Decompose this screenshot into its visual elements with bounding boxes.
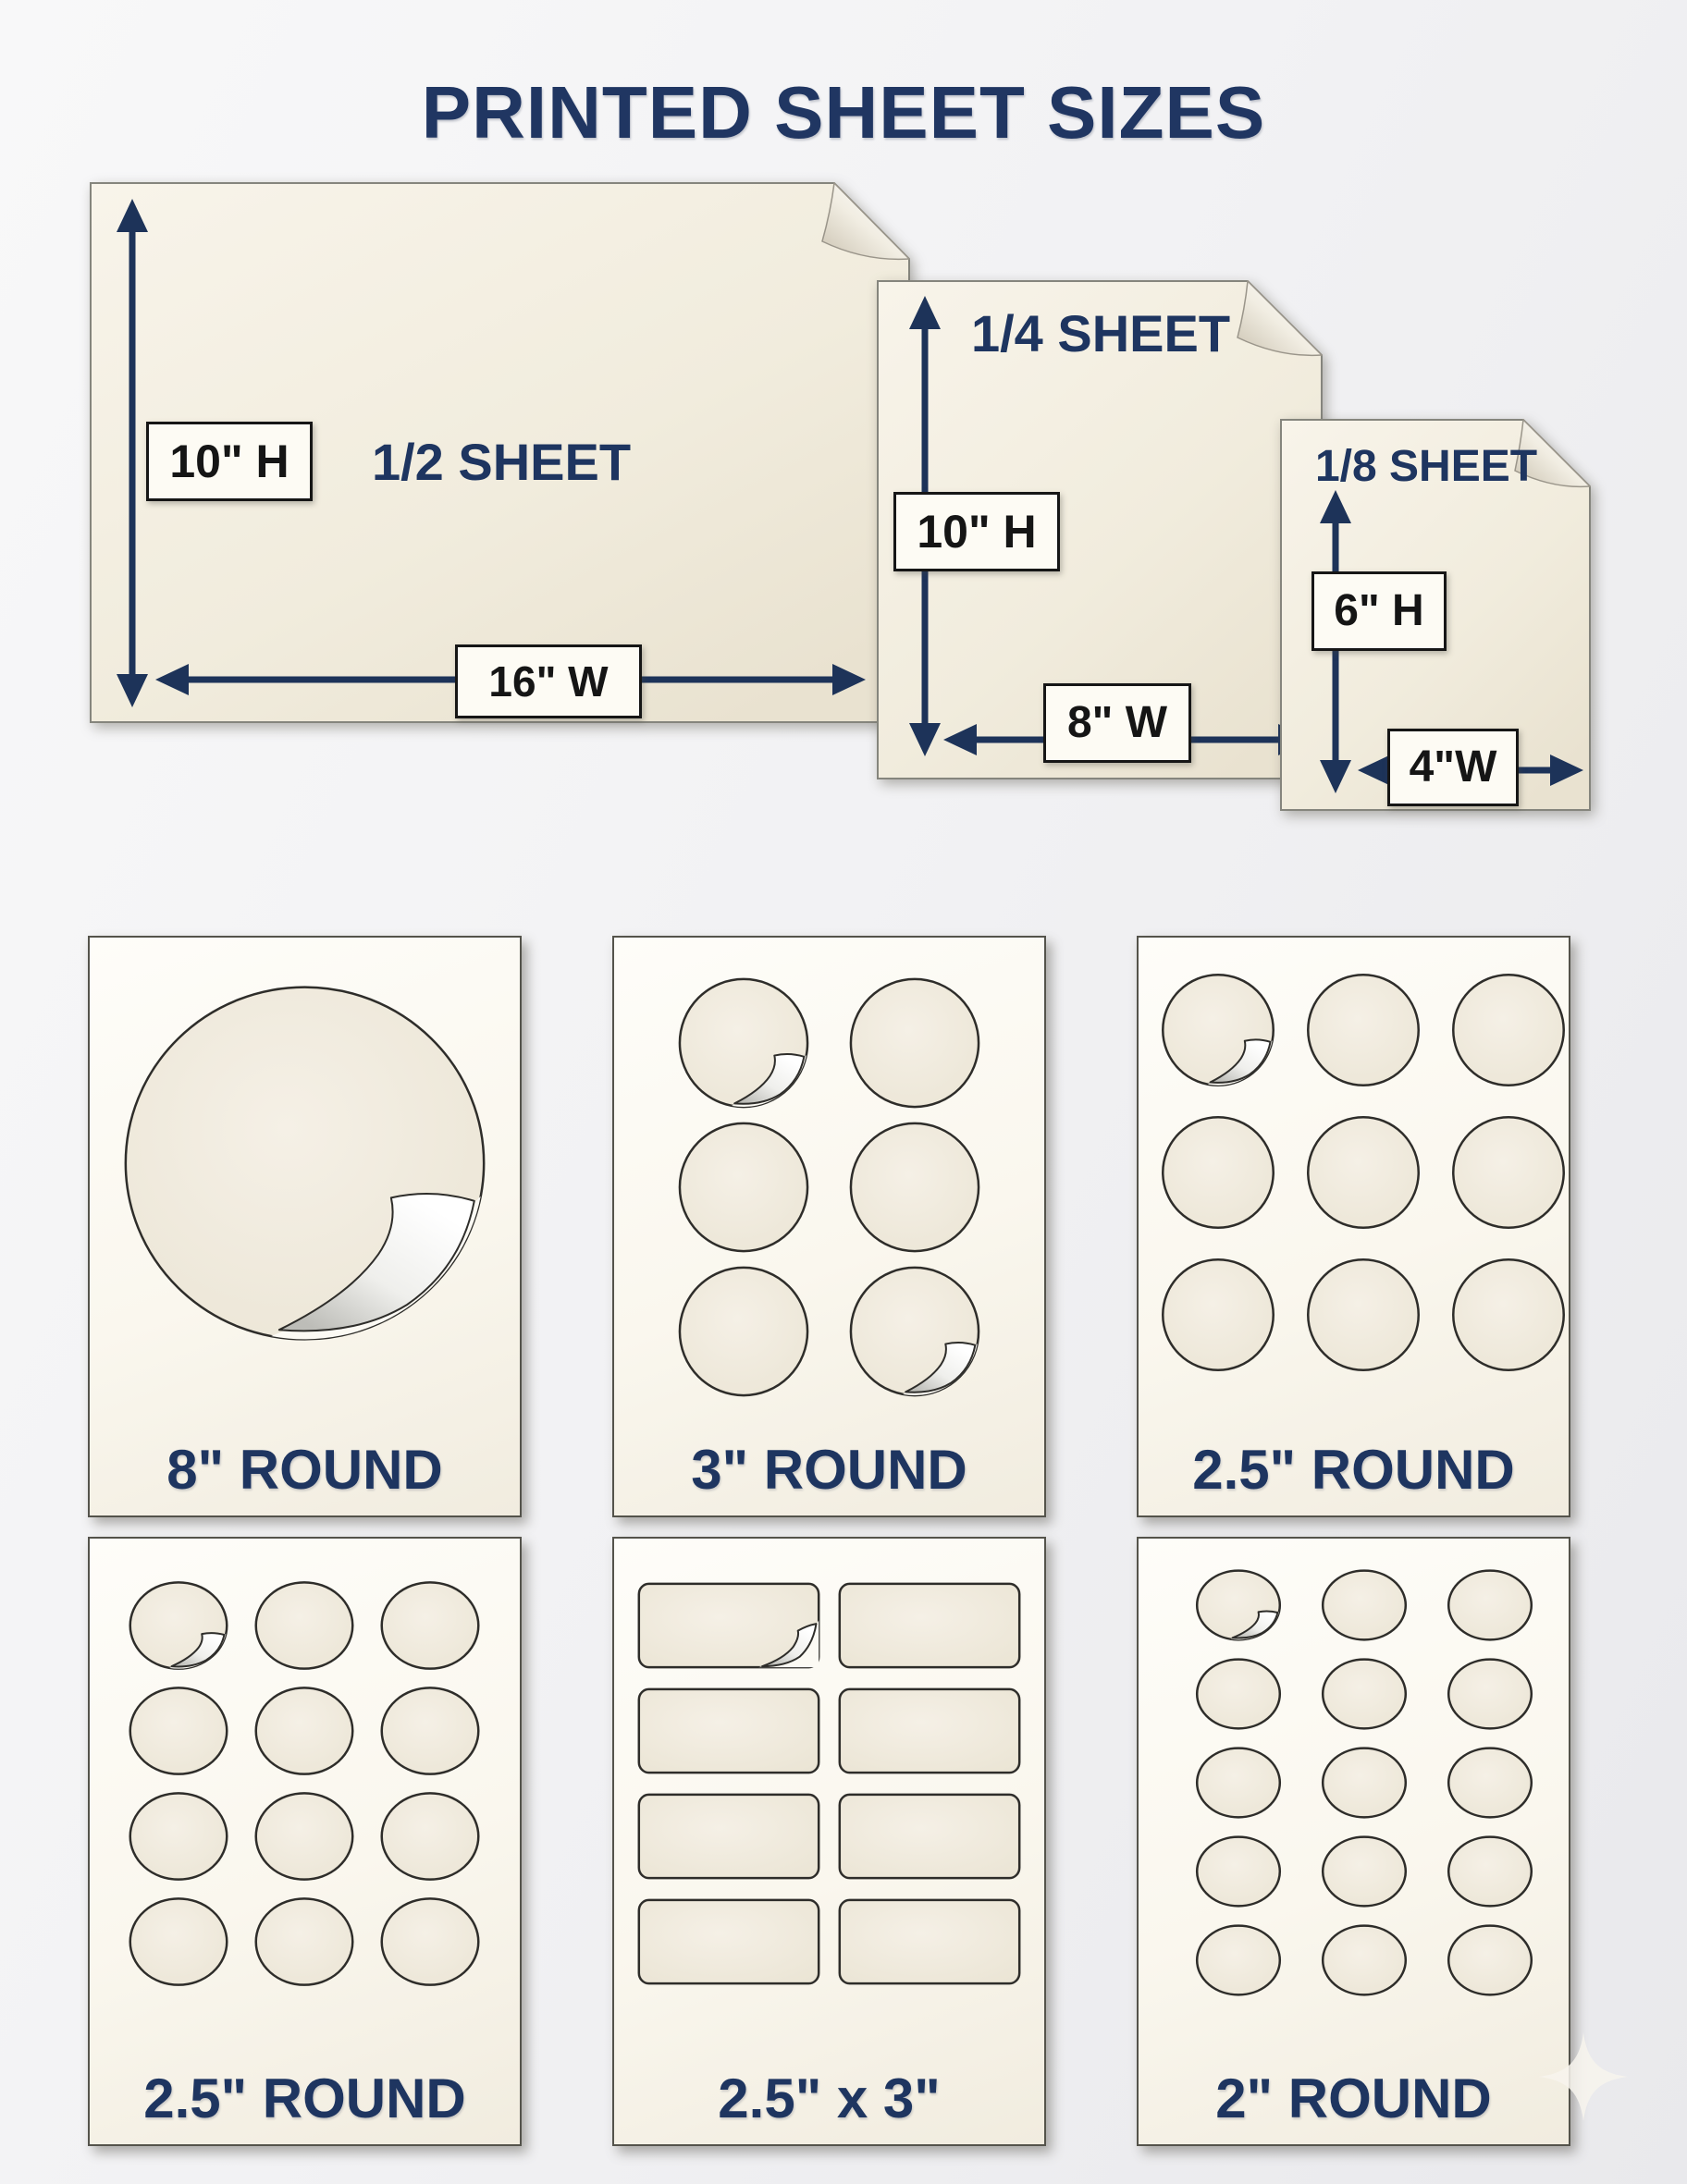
- label-sheet-round-2-5-12up: 2.5" ROUND: [88, 1537, 522, 2146]
- sticker-circle: [1197, 1926, 1280, 1995]
- sticker-grid: [1139, 938, 1569, 1418]
- width-label: 4"W: [1387, 729, 1519, 806]
- sticker-circle: [851, 1123, 979, 1251]
- sticker-grid: [90, 938, 520, 1418]
- sticker-circle: [1323, 1660, 1406, 1729]
- sticker-circle: [680, 1268, 807, 1395]
- sheet-name: 1/4 SHEET: [916, 301, 1286, 366]
- card-label: 2.5" ROUND: [1139, 1440, 1569, 1501]
- sticker-rect: [840, 1689, 1019, 1773]
- sticker-circle: [1323, 1571, 1406, 1640]
- sparkle-watermark-icon: [1539, 2032, 1628, 2121]
- card-label: 3" ROUND: [614, 1440, 1044, 1501]
- sticker-circle: [680, 1123, 807, 1251]
- sticker-circle: [1453, 1117, 1563, 1227]
- sticker-circle: [851, 979, 979, 1107]
- label-sheet-rect-2-5x3: 2.5" x 3": [612, 1537, 1046, 2146]
- half-sheet: 10" H 16" W 1/2 SHEET: [90, 182, 910, 723]
- sticker-circle: [1197, 1660, 1280, 1729]
- sheet-name: 1/8 SHEET: [1287, 437, 1565, 497]
- sticker-rect: [639, 1689, 819, 1773]
- printed-sheet-sizes-infographic: PRINTED SHEET SIZES 10" H 16" W 1/2 SHEE…: [0, 0, 1687, 2184]
- sticker-circle: [1197, 1748, 1280, 1818]
- sticker-circle: [382, 1687, 479, 1773]
- sticker-rect: [840, 1900, 1019, 1983]
- sheet-name: 1/2 SHEET: [316, 430, 686, 495]
- sticker-circle: [256, 1687, 353, 1773]
- sticker-circle: [382, 1793, 479, 1879]
- sticker-grid: [90, 1539, 520, 2038]
- sticker-circle: [1163, 1117, 1273, 1227]
- sticker-circle-peeled: [851, 1268, 979, 1395]
- sticker-circle: [1448, 1748, 1532, 1818]
- sticker-grid: [614, 938, 1044, 1418]
- sticker-circle: [1448, 1926, 1532, 1995]
- sticker-circle: [1308, 1117, 1418, 1227]
- width-label: 16" W: [455, 644, 642, 718]
- sticker-circle: [382, 1582, 479, 1668]
- sticker-grid: [614, 1539, 1044, 2038]
- sticker-circle-peeled: [1163, 975, 1273, 1085]
- label-sheet-round-2-5-9up: 2.5" ROUND: [1137, 936, 1570, 1517]
- sticker-circle: [1323, 1926, 1406, 1995]
- width-label: 8" W: [1043, 683, 1191, 763]
- sticker-circle: [1163, 1259, 1273, 1369]
- height-label: 6" H: [1311, 571, 1447, 651]
- card-label: 2" ROUND: [1139, 2068, 1569, 2129]
- sticker-circle: [256, 1582, 353, 1668]
- quarter-sheet: 10" H 8" W 1/4 SHEET: [877, 280, 1323, 779]
- sticker-rect: [639, 1900, 819, 1983]
- height-label: 10" H: [893, 492, 1060, 571]
- page-title: PRINTED SHEET SIZES: [0, 70, 1687, 155]
- sticker-rect-peeled: [639, 1584, 819, 1667]
- sticker-circle: [382, 1898, 479, 1984]
- sticker-circle: [130, 1687, 228, 1773]
- height-label: 10" H: [146, 422, 313, 501]
- label-sheet-round-8: 8" ROUND: [88, 936, 522, 1517]
- sticker-circle: [130, 1793, 228, 1879]
- sticker-circle: [1197, 1837, 1280, 1907]
- sticker-circle: [256, 1898, 353, 1984]
- card-label: 2.5" ROUND: [90, 2068, 520, 2129]
- sticker-circle-peeled: [126, 988, 484, 1340]
- sticker-circle: [256, 1793, 353, 1879]
- sticker-circle: [1448, 1571, 1532, 1640]
- sticker-circle: [1453, 1259, 1563, 1369]
- sticker-circle: [1323, 1837, 1406, 1907]
- label-sheet-round-3: 3" ROUND: [612, 936, 1046, 1517]
- sticker-circle: [1323, 1748, 1406, 1818]
- sticker-circle-peeled: [1197, 1571, 1280, 1640]
- sticker-rect: [840, 1584, 1019, 1667]
- eighth-sheet: 6" H 4"W 1/8 SHEET: [1280, 419, 1591, 811]
- sticker-rect: [840, 1795, 1019, 1878]
- sticker-grid: [1139, 1539, 1569, 2038]
- sticker-circle: [1448, 1660, 1532, 1729]
- sticker-circle-peeled: [130, 1582, 228, 1668]
- sticker-circle: [1308, 1259, 1418, 1369]
- card-label: 8" ROUND: [90, 1440, 520, 1501]
- sticker-circle: [1448, 1837, 1532, 1907]
- label-sheet-round-2: 2" ROUND: [1137, 1537, 1570, 2146]
- sticker-rect: [639, 1795, 819, 1878]
- sticker-circle-peeled: [680, 979, 807, 1107]
- sticker-circle: [130, 1898, 228, 1984]
- card-label: 2.5" x 3": [614, 2068, 1044, 2129]
- sticker-circle: [1453, 975, 1563, 1085]
- sticker-circle: [1308, 975, 1418, 1085]
